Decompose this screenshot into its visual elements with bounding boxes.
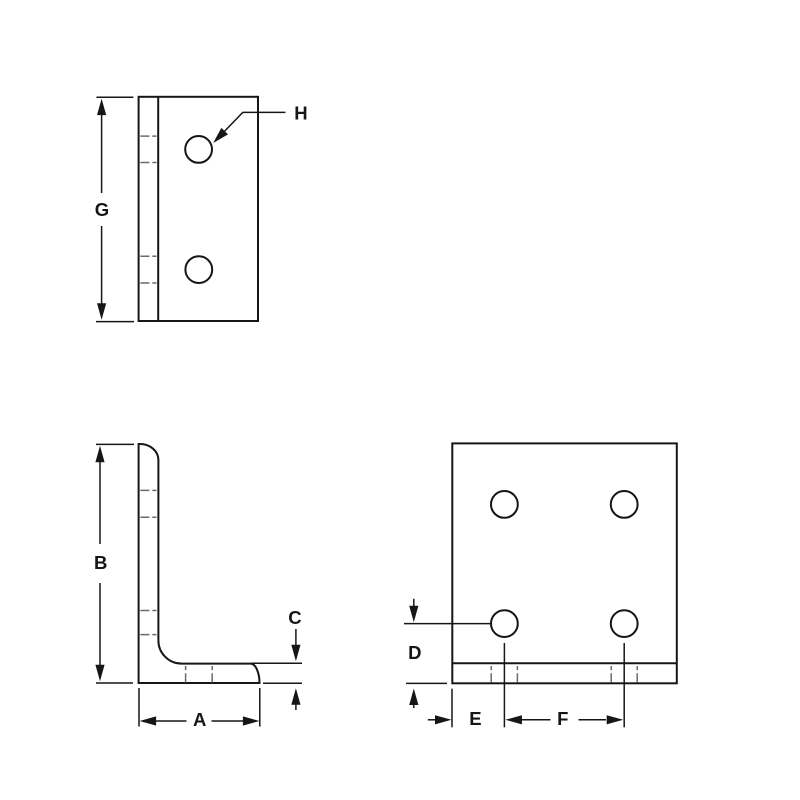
svg-text:H: H [294,103,307,124]
svg-text:E: E [469,708,481,729]
svg-text:F: F [557,708,568,729]
svg-text:C: C [288,607,301,628]
svg-text:D: D [408,642,421,663]
svg-text:B: B [94,552,107,573]
svg-text:A: A [193,709,206,730]
svg-text:G: G [95,199,109,220]
